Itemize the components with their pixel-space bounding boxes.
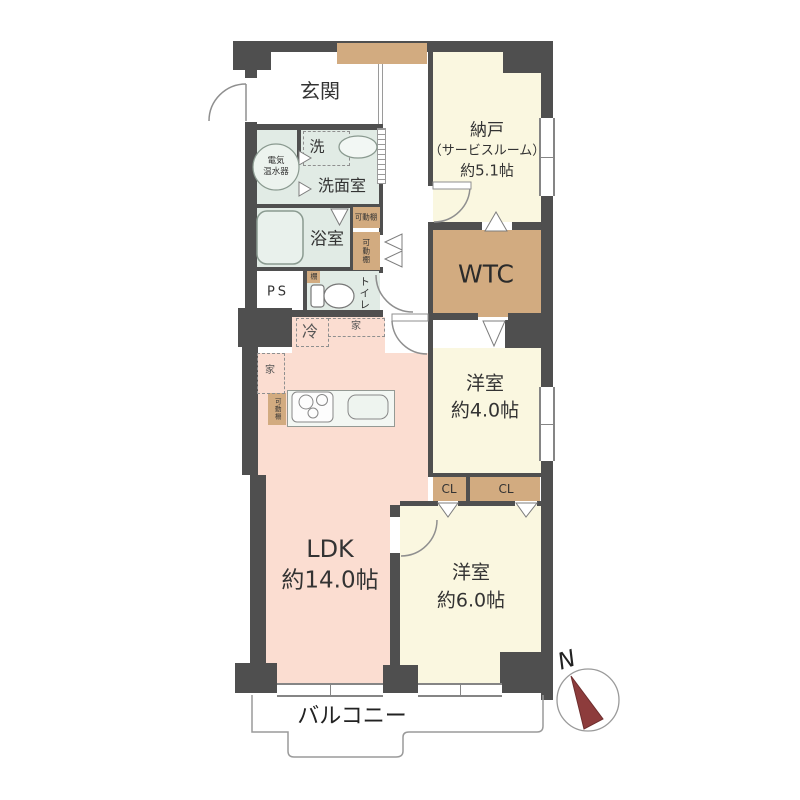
wtc-door-marker [483,321,505,346]
washroom-door-marker [299,182,311,196]
label-wtc: WTC [458,262,514,287]
fixtures-layer [0,0,800,800]
label-furniture-top: 家 [351,322,361,332]
label-western4-size: 約4.0帖 [451,402,519,421]
label-washroom: 洗面室 [318,178,366,194]
closet-fold-door-marker [385,234,402,250]
kitchen-sink [348,395,388,419]
western6-door-arc [401,520,437,556]
washbasin [339,136,377,158]
label-heater-2: 温水器 [263,168,289,177]
label-ldk-name: LDK [306,537,354,561]
label-small-shelf: 棚 [311,274,318,281]
label-bathroom: 浴室 [310,232,344,249]
label-toilet: トイレ [359,276,370,311]
bath-door-marker [331,209,348,225]
toilet-door-arc [376,275,413,312]
label-shelf-kitchen: 可動棚 [274,398,281,421]
label-balcony: バルコニー [297,706,407,728]
label-pipe-space: PS [267,286,289,299]
cl-door-marker [516,503,537,517]
storage-door-leaf [433,182,471,189]
label-cl-left: CL [441,483,456,495]
label-western4-name: 洋室 [466,375,504,394]
toilet-bowl [324,284,354,308]
label-heater-1: 電気 [267,157,284,166]
label-shelf-side: 可動棚 [362,238,370,264]
wtc-door-marker [485,212,507,231]
ldk-door-leaf [392,314,428,321]
toilet-tank [311,285,324,307]
label-furniture-side: 家 [265,366,275,376]
label-storage-sub: （サービスルーム） [429,145,546,158]
label-shelf-top: 可動棚 [355,213,378,221]
closet-fold-door-marker [385,251,402,267]
bathtub [257,211,303,264]
cl-door-marker [438,503,458,517]
label-entrance: 玄関 [300,81,340,101]
label-western6-size: 約6.0帖 [437,592,505,611]
ldk-door-arc [392,321,427,354]
label-storage-name: 納戸 [470,123,504,140]
entrance-door-arc [209,84,246,121]
label-ldk-size: 約14.0帖 [281,570,378,593]
label-washer: 洗 [309,140,324,155]
storage-door-arc [434,186,470,222]
label-storage-size: 約5.1帖 [460,164,514,179]
label-western6-name: 洋室 [452,564,490,583]
label-refrigerator: 冷 [302,324,318,340]
label-cl-right: CL [498,483,513,495]
floorplan: 玄関 納戸 （サービスルーム） 約5.1帖 洗 洗面室 電気 温水器 浴室 可動… [0,0,800,800]
